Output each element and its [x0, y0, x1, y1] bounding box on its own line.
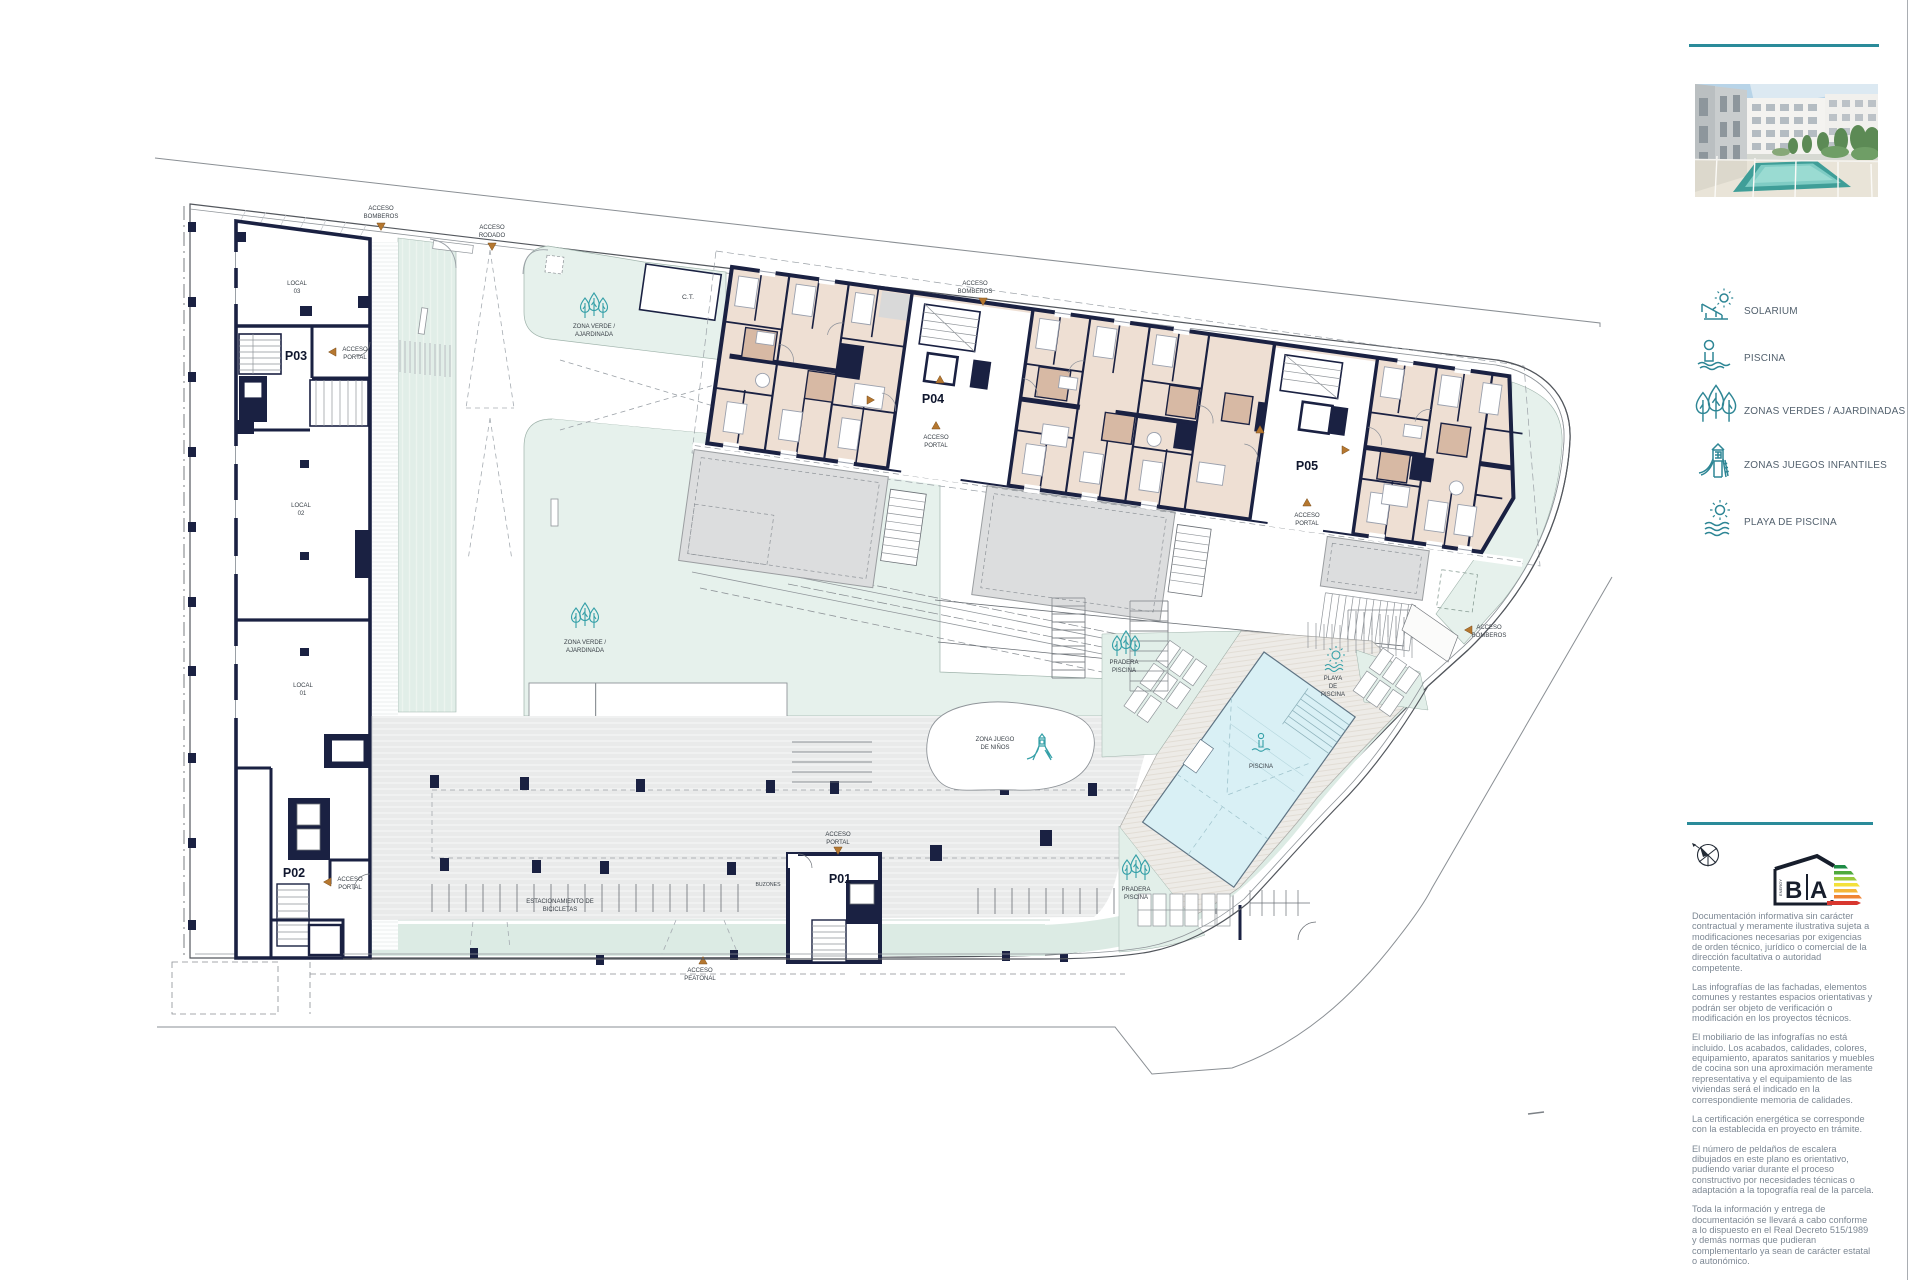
svg-text:PRADERA: PRADERA — [1121, 887, 1150, 893]
svg-text:RODADO: RODADO — [479, 233, 506, 239]
svg-text:ACCESO: ACCESO — [337, 877, 363, 883]
svg-text:PRADERA: PRADERA — [1109, 660, 1138, 666]
svg-text:PORTAL: PORTAL — [924, 443, 948, 449]
svg-text:B: B — [1785, 877, 1802, 904]
svg-text:ZONA VERDE /: ZONA VERDE / — [564, 640, 606, 646]
svg-text:ZONA JUEGO: ZONA JUEGO — [976, 737, 1015, 743]
svg-text:PEATONAL: PEATONAL — [684, 976, 716, 982]
svg-text:PORTAL: PORTAL — [343, 355, 367, 361]
svg-text:PISCINA: PISCINA — [1249, 764, 1273, 770]
svg-text:DE: DE — [1329, 684, 1337, 690]
svg-text:01: 01 — [300, 691, 307, 697]
svg-text:PISCINA: PISCINA — [1321, 692, 1345, 698]
svg-text:02: 02 — [298, 511, 305, 517]
svg-text:P03: P03 — [285, 349, 307, 363]
svg-text:BOMBEROS: BOMBEROS — [364, 214, 399, 220]
svg-text:ZONA VERDE /: ZONA VERDE / — [573, 324, 615, 330]
svg-text:AJARDINADA: AJARDINADA — [575, 332, 613, 338]
svg-text:ENERGY: ENERGY — [1778, 879, 1783, 896]
svg-text:A: A — [1810, 877, 1827, 904]
svg-text:ACCESO: ACCESO — [687, 968, 713, 974]
svg-text:LOCAL: LOCAL — [291, 503, 311, 509]
svg-text:P05: P05 — [1296, 459, 1318, 473]
svg-text:ACCESO: ACCESO — [923, 435, 949, 441]
svg-text:ACCESO: ACCESO — [479, 225, 505, 231]
svg-text:LOCAL: LOCAL — [287, 281, 307, 287]
svg-text:PORTAL: PORTAL — [338, 885, 362, 891]
svg-text:PLAYA: PLAYA — [1324, 676, 1342, 682]
svg-text:BOMBEROS: BOMBEROS — [958, 289, 993, 295]
svg-text:ACCESO: ACCESO — [368, 206, 394, 212]
svg-text:PORTAL: PORTAL — [826, 840, 850, 846]
svg-text:ACCESO: ACCESO — [962, 281, 988, 287]
svg-text:BOMBEROS: BOMBEROS — [1472, 633, 1507, 639]
svg-text:ACCESO: ACCESO — [825, 832, 851, 838]
svg-text:PISCINA: PISCINA — [1124, 895, 1148, 901]
svg-text:BUZONES: BUZONES — [755, 882, 781, 888]
svg-text:03: 03 — [294, 289, 301, 295]
svg-text:PORTAL: PORTAL — [1295, 521, 1319, 527]
svg-text:BICICLETAS: BICICLETAS — [543, 907, 578, 913]
svg-text:P01: P01 — [829, 872, 851, 886]
svg-text:P02: P02 — [283, 866, 305, 880]
svg-text:PISCINA: PISCINA — [1112, 668, 1136, 674]
svg-text:C.T.: C.T. — [682, 294, 694, 301]
svg-text:ACCESO: ACCESO — [342, 347, 368, 353]
svg-text:ESTACIONAMIENTO DE: ESTACIONAMIENTO DE — [526, 899, 593, 905]
svg-text:LOCAL: LOCAL — [293, 683, 313, 689]
svg-text:ACCESO: ACCESO — [1294, 513, 1320, 519]
svg-text:P04: P04 — [922, 392, 944, 406]
svg-text:DE NIÑOS: DE NIÑOS — [980, 744, 1009, 751]
svg-text:AJARDINADA: AJARDINADA — [566, 648, 604, 654]
